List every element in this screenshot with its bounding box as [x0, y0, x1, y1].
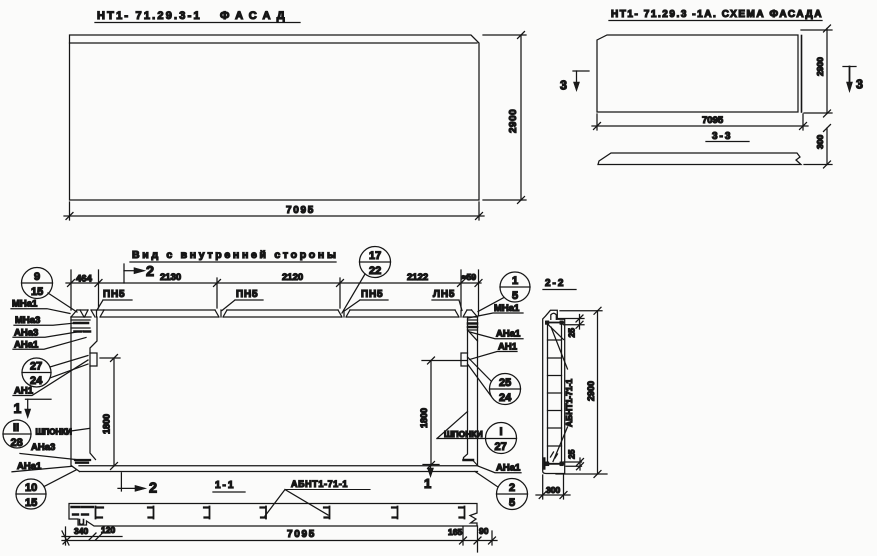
- svg-text:7095: 7095: [287, 529, 316, 540]
- svg-text:ЛН5: ЛН5: [433, 289, 455, 300]
- svg-text:1800: 1800: [102, 414, 112, 434]
- svg-text:НТ1- 71.29.3-1: НТ1- 71.29.3-1: [97, 10, 202, 22]
- svg-text:≈59: ≈59: [462, 272, 476, 282]
- svg-text:АНа1: АНа1: [496, 329, 521, 340]
- svg-text:ПН5: ПН5: [103, 289, 125, 300]
- svg-text:27: 27: [495, 441, 507, 453]
- svg-text:2: 2: [509, 482, 515, 494]
- svg-text:10: 10: [25, 482, 37, 494]
- svg-text:ПН5: ПН5: [236, 289, 258, 300]
- svg-text:300: 300: [815, 135, 825, 149]
- svg-text:ФАСАД: ФАСАД: [220, 10, 291, 22]
- svg-text:7095: 7095: [702, 115, 724, 126]
- svg-text:2900: 2900: [815, 57, 825, 76]
- svg-text:АНа3: АНа3: [31, 442, 55, 453]
- svg-text:1-1: 1-1: [215, 480, 235, 491]
- svg-text:90: 90: [479, 526, 489, 536]
- svg-text:2-2: 2-2: [545, 278, 565, 289]
- svg-text:2900: 2900: [586, 381, 596, 401]
- svg-text:17: 17: [369, 250, 381, 262]
- svg-text:5: 5: [509, 497, 515, 509]
- svg-text:1800: 1800: [419, 408, 429, 428]
- svg-text:2: 2: [149, 481, 157, 497]
- svg-text:1: 1: [424, 476, 431, 491]
- svg-text:АН1: АН1: [14, 386, 34, 397]
- svg-text:24: 24: [499, 392, 512, 404]
- svg-text:3: 3: [560, 79, 567, 93]
- svg-text:464: 464: [76, 274, 93, 285]
- svg-text:3: 3: [856, 78, 863, 92]
- svg-text:ПН5: ПН5: [361, 289, 383, 300]
- svg-text:МНа1: МНа1: [12, 299, 38, 310]
- svg-text:II: II: [13, 422, 19, 434]
- svg-text:5: 5: [512, 290, 518, 302]
- svg-text:1: 1: [14, 400, 22, 416]
- svg-text:165: 165: [448, 527, 462, 537]
- svg-text:22: 22: [369, 265, 381, 277]
- svg-text:15: 15: [25, 497, 37, 509]
- svg-text:I: I: [500, 426, 503, 438]
- svg-text:2122: 2122: [407, 272, 428, 283]
- svg-text:25: 25: [499, 377, 511, 389]
- svg-text:7095: 7095: [286, 205, 315, 216]
- svg-text:340: 340: [74, 526, 88, 536]
- svg-text:НТ1- 71.29.3 -1А. СХЕМА ФАСАДА: НТ1- 71.29.3 -1А. СХЕМА ФАСАДА: [611, 9, 823, 20]
- svg-text:МНа3: МНа3: [15, 315, 40, 326]
- svg-text:2130: 2130: [160, 272, 181, 283]
- svg-text:27: 27: [30, 361, 42, 373]
- svg-text:120: 120: [101, 525, 115, 535]
- svg-text:1: 1: [512, 275, 518, 287]
- svg-text:2: 2: [146, 264, 154, 280]
- svg-text:9: 9: [34, 271, 40, 283]
- svg-text:28: 28: [11, 437, 23, 449]
- svg-text:АН1: АН1: [498, 342, 518, 353]
- svg-text:2120: 2120: [282, 272, 303, 283]
- svg-text:МНа1: МНа1: [494, 303, 520, 314]
- svg-text:15: 15: [31, 286, 43, 298]
- svg-text:АНа1: АНа1: [496, 463, 521, 474]
- svg-text:25: 25: [567, 328, 577, 338]
- svg-text:25: 25: [567, 449, 577, 459]
- svg-text:ШПОНКИ: ШПОНКИ: [444, 429, 483, 439]
- svg-text:Вид с внутренней стороны: Вид с внутренней стороны: [132, 249, 339, 261]
- svg-text:3-3: 3-3: [712, 131, 732, 142]
- svg-text:АБНТ1-71-1: АБНТ1-71-1: [564, 379, 574, 427]
- svg-text:300: 300: [546, 485, 560, 495]
- svg-text:АБНТ1-71-1: АБНТ1-71-1: [291, 479, 348, 489]
- svg-text:2900: 2900: [508, 109, 519, 133]
